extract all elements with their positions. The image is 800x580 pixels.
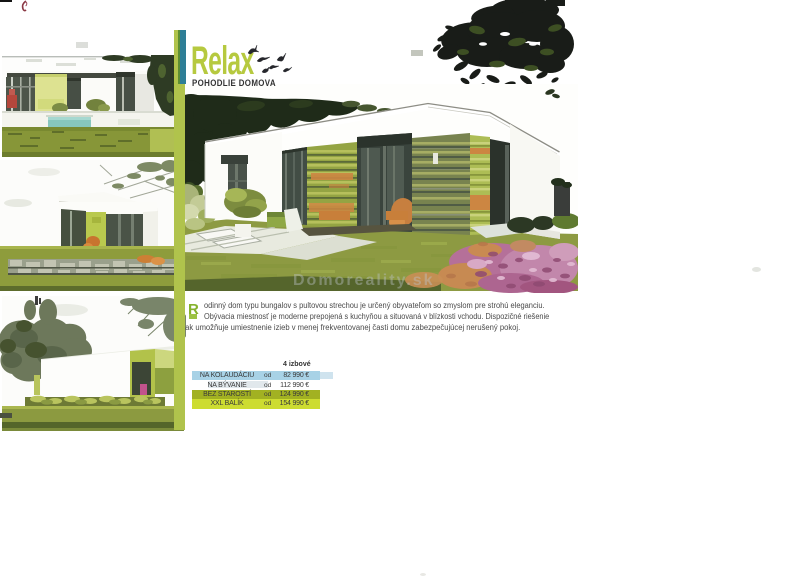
svg-text:Domoreality.sk: Domoreality.sk bbox=[293, 272, 435, 289]
